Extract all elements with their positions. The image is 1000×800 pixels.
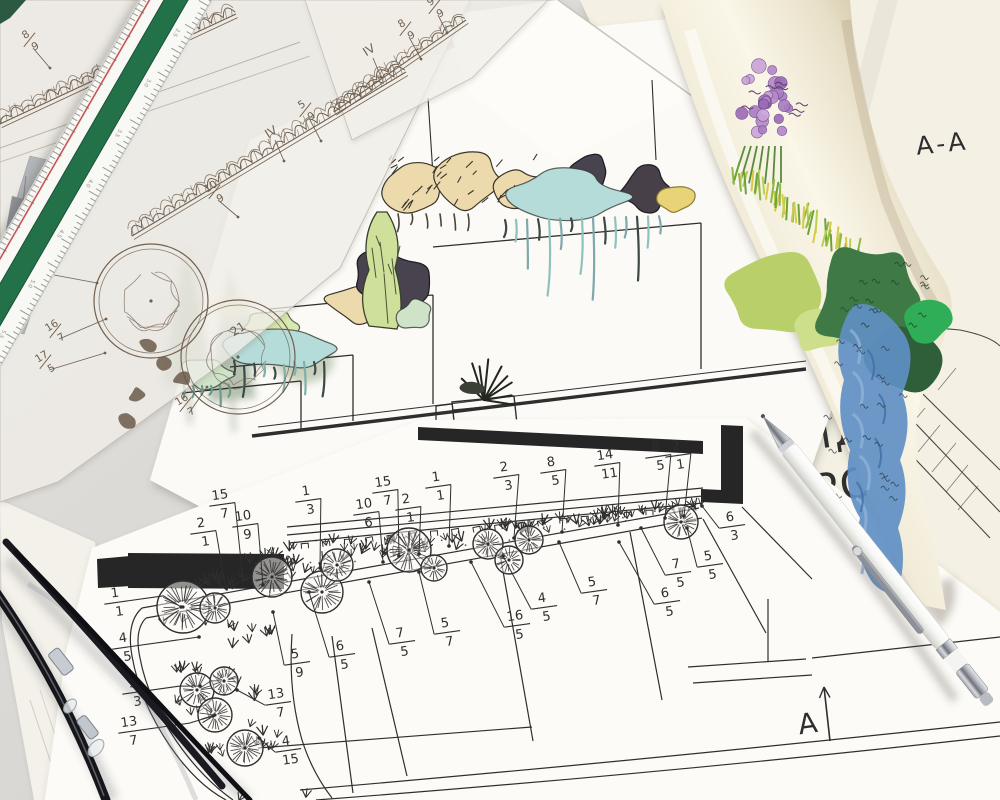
svg-text:15: 15: [281, 752, 299, 769]
plan-tree-symbol: [515, 526, 543, 554]
svg-text:10: 10: [355, 496, 373, 513]
svg-text:15: 15: [374, 474, 392, 491]
scene: А-А ИД РО 89109IV59IV89992321167175167 2…: [0, 0, 1000, 800]
plan-tree-symbol: [252, 557, 292, 597]
svg-text:14: 14: [596, 447, 614, 464]
plan-tree-symbol: [664, 505, 698, 539]
svg-text:11: 11: [600, 466, 618, 483]
svg-text:13: 13: [267, 686, 285, 703]
plan-tree-symbol: [421, 555, 447, 581]
svg-text:15: 15: [211, 487, 229, 504]
section-mark-label: А-А: [915, 126, 970, 160]
svg-text:16: 16: [506, 608, 524, 625]
desk-photo: А-А ИД РО 89109IV59IV89992321167175167 2…: [0, 0, 1000, 800]
plan-tree-symbol: [227, 730, 263, 766]
svg-text:10: 10: [234, 508, 252, 525]
plan-tree-symbol: [198, 698, 232, 732]
plan-tree-symbol: [200, 593, 230, 623]
svg-text:13: 13: [120, 714, 138, 731]
plan-tree-symbol: [321, 549, 353, 581]
plan-tree-symbol: [210, 667, 238, 695]
